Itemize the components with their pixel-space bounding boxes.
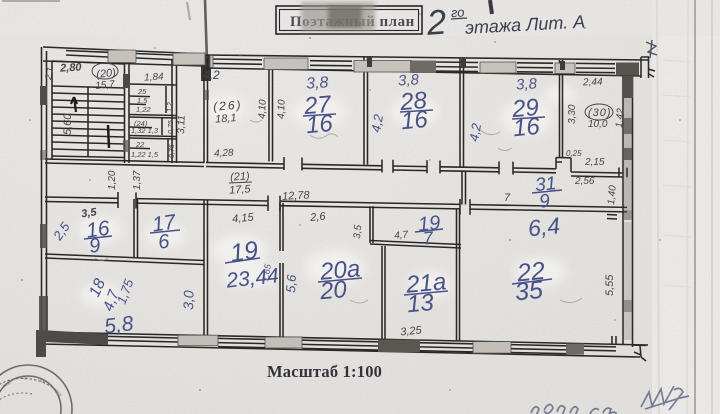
svg-text:6,4: 6,4 xyxy=(527,212,562,241)
svg-text:4,28: 4,28 xyxy=(214,148,234,160)
svg-text:16: 16 xyxy=(305,110,335,139)
svg-text:4,2: 4,2 xyxy=(203,68,220,82)
svg-text:25: 25 xyxy=(137,87,147,96)
svg-text:1,22: 1,22 xyxy=(136,105,151,114)
svg-text:4,10: 4,10 xyxy=(257,99,269,119)
svg-text:3,8: 3,8 xyxy=(515,75,538,93)
svg-text:3,0: 3,0 xyxy=(180,290,197,310)
svg-text:3,8: 3,8 xyxy=(306,74,329,93)
svg-text:1,75: 1,75 xyxy=(114,276,137,306)
svg-text:1,5: 1,5 xyxy=(137,96,148,105)
svg-text:35: 35 xyxy=(514,276,545,307)
svg-text:2,80: 2,80 xyxy=(59,61,83,74)
svg-text:1,22 1,5: 1,22 1,5 xyxy=(131,150,159,159)
svg-text:20: 20 xyxy=(318,276,349,305)
svg-text:2,15: 2,15 xyxy=(584,157,605,168)
svg-text:16: 16 xyxy=(512,113,542,142)
svg-text:4,10: 4,10 xyxy=(276,99,288,119)
svg-text:7: 7 xyxy=(504,192,511,204)
svg-text:4,2: 4,2 xyxy=(466,121,484,142)
svg-text:3,5: 3,5 xyxy=(352,224,364,239)
svg-text:19: 19 xyxy=(228,236,260,268)
svg-text:2,44: 2,44 xyxy=(582,77,603,89)
svg-text:2,6: 2,6 xyxy=(309,211,327,224)
svg-text:22: 22 xyxy=(135,140,145,149)
svg-text:15,7: 15,7 xyxy=(95,79,116,92)
svg-text:4,7: 4,7 xyxy=(394,230,409,242)
svg-text:5,55: 5,55 xyxy=(604,274,616,296)
svg-text:1,37: 1,37 xyxy=(132,170,143,190)
svg-text:5,60: 5,60 xyxy=(62,113,74,135)
svg-text:1,84: 1,84 xyxy=(144,72,164,84)
svg-text:1,32 1,3: 1,32 1,3 xyxy=(131,126,159,135)
svg-text:2,1: 2,1 xyxy=(43,66,55,81)
svg-text:10,0: 10,0 xyxy=(588,119,608,130)
svg-text:0,75: 0,75 xyxy=(168,120,175,134)
svg-text:0,25: 0,25 xyxy=(566,149,582,158)
svg-text:0,76: 0,76 xyxy=(169,144,176,158)
svg-text:4,15: 4,15 xyxy=(232,211,255,225)
svg-text:1,40: 1,40 xyxy=(606,184,619,205)
svg-text:17,5: 17,5 xyxy=(229,183,252,197)
svg-text:1,42: 1,42 xyxy=(614,107,627,128)
svg-text:(21): (21) xyxy=(230,170,251,183)
svg-text:5,6: 5,6 xyxy=(283,274,299,294)
svg-text:1,2: 1,2 xyxy=(167,102,174,112)
svg-text:3,25: 3,25 xyxy=(400,324,423,338)
svg-text:18,1: 18,1 xyxy=(215,112,237,125)
svg-text:13: 13 xyxy=(406,289,436,318)
svg-text:2,56: 2,56 xyxy=(574,176,595,187)
svg-text:(30): (30) xyxy=(588,107,612,119)
svg-text:12,78: 12,78 xyxy=(282,189,311,202)
svg-text:1,20: 1,20 xyxy=(107,170,118,190)
svg-text:5,8: 5,8 xyxy=(103,312,135,338)
svg-text:(26): (26) xyxy=(213,98,243,114)
svg-text:16: 16 xyxy=(400,106,430,135)
svg-text:2,5: 2,5 xyxy=(50,219,74,244)
svg-text:3,30: 3,30 xyxy=(567,104,578,124)
svg-text:4,2: 4,2 xyxy=(368,112,386,133)
svg-text:3,11: 3,11 xyxy=(176,115,188,134)
